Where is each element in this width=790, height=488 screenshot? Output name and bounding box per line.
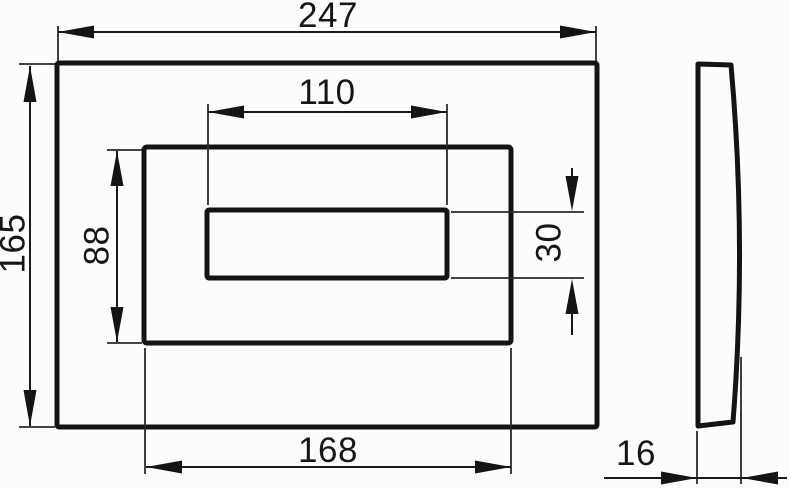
- dim-label-outer-height: 165: [0, 209, 31, 279]
- technical-drawing-canvas: 247 110 165 88 30 168 16: [0, 0, 790, 488]
- drawing-linework: [0, 0, 790, 488]
- dim-label-frame-height: 88: [80, 211, 115, 281]
- arrow-up-icon: [566, 279, 579, 314]
- arrow-right-icon: [560, 26, 596, 39]
- dim-label-outer-width: 247: [268, 0, 388, 33]
- dim-label-thickness: 16: [596, 436, 676, 471]
- dim-label-frame-width: 168: [268, 433, 388, 468]
- arrow-up-icon: [111, 151, 124, 186]
- arrow-down-icon: [566, 176, 579, 211]
- arrow-up-icon: [24, 66, 37, 102]
- arrow-right-icon: [475, 461, 511, 474]
- dim-label-slot-height: 30: [532, 208, 567, 278]
- arrow-left-icon: [58, 26, 94, 39]
- front-view: [57, 63, 597, 427]
- dim-label-slot-width: 110: [267, 75, 387, 110]
- arrow-right-icon: [661, 472, 697, 485]
- plate-outer-outline: [57, 63, 597, 427]
- arrow-down-icon: [24, 390, 37, 426]
- arrow-down-icon: [111, 307, 124, 342]
- arrow-left-icon: [742, 472, 778, 485]
- side-profile-outline: [698, 64, 740, 426]
- arrow-right-icon: [411, 106, 447, 119]
- dim-slot-width: [208, 104, 447, 205]
- button-frame-outline: [144, 147, 511, 343]
- arrow-left-icon: [146, 461, 182, 474]
- side-view: [698, 64, 740, 426]
- arrow-left-icon: [208, 106, 244, 119]
- slot-outline: [207, 210, 447, 278]
